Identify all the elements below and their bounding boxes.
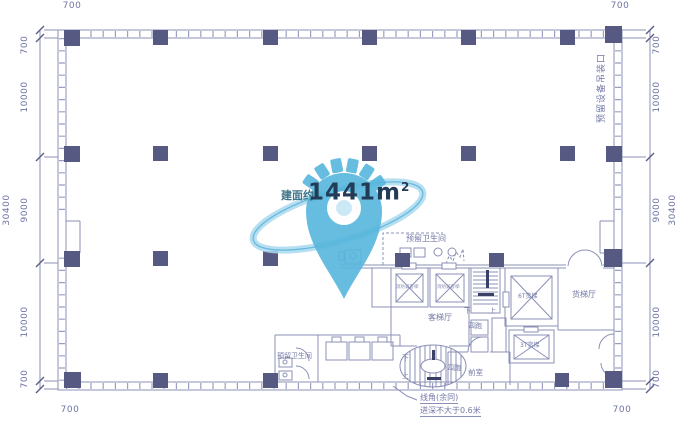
corner-note-line1: 线角(余同) [420,394,458,404]
corner-note-line2: 进深不大于0.6米 [420,407,481,417]
room-front-room: 前室 [468,369,483,377]
stair2-up-label: 上 [402,373,409,380]
stair1-down-label: 下 [464,308,471,315]
dim-left-seg-10000-a: 10000 [21,75,33,119]
area-watermark-value: 1441m2 [308,181,410,205]
dim-left-seg-700-top: 700 [21,23,33,67]
stair1-runs-label: 四跑 [468,323,482,330]
room-passenger-lift-lobby: 客梯厅 [428,314,452,322]
stair2-runs-label: 四跑 [447,365,461,372]
dim-right-seg-10000-b: 10000 [653,300,665,344]
dim-left-seg-10000-b: 10000 [21,300,33,344]
floor-plan-drawing [0,0,690,426]
dim-bottom-left: 700 [56,406,84,415]
dim-left-seg-9000: 9000 [21,188,33,232]
stair1-up-label: 上 [489,308,496,315]
room-reserved-toilet-top: 预留卫生间 [406,235,446,243]
area-exponent: 2 [401,180,410,194]
dim-right-seg-9000: 9000 [653,188,665,232]
dim-right-seg-700-top: 700 [653,23,665,67]
equipment-opening-label: 预留设备吊装口 [598,40,610,136]
dim-left-total: 30400 [3,188,15,232]
corner-note-leader [393,386,417,400]
dim-bottom-right: 700 [608,406,636,415]
dim-right-seg-700-bot: 700 [653,357,665,401]
dim-right-seg-10000-a: 10000 [653,75,665,119]
label-fire-lift-b: 消防兼客梯 [437,286,460,291]
stair2-down-label: 下 [402,355,409,362]
room-lift-3t: 3T货梯 [520,343,539,349]
label-fire-lift-a: 消防兼客梯 [396,286,419,291]
dim-right-total: 30400 [669,188,681,232]
room-reserved-toilet-bottom: 预留卫生间 [277,353,312,360]
floor-plan-screenshot: 700 700 700 700 700 10000 9000 10000 700… [0,0,690,426]
area-number: 1441m [308,180,401,206]
dim-top-right: 700 [606,2,634,11]
room-freight-lift-lobby: 货梯厅 [572,291,596,299]
dim-left-seg-700-bot: 700 [21,357,33,401]
room-lift-6t: 6T货梯 [518,294,537,300]
dim-top-left: 700 [58,2,86,11]
